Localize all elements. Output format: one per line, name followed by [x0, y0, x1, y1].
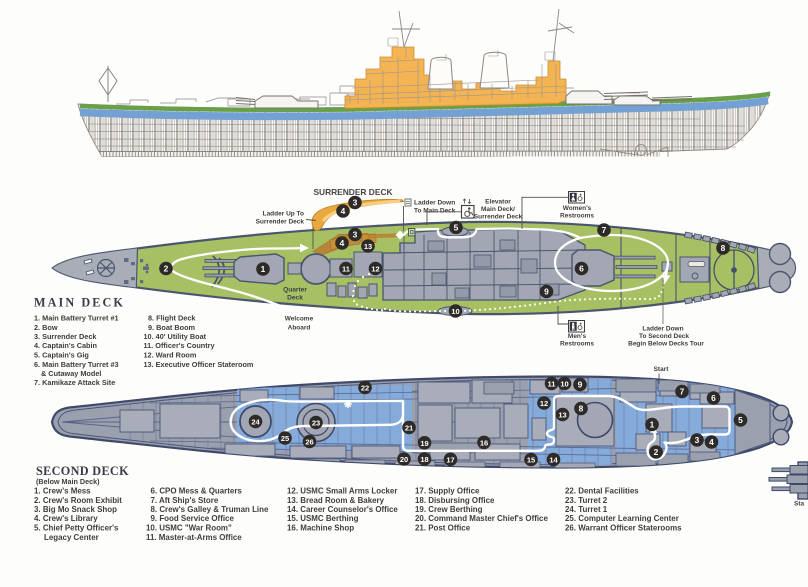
svg-text:6: 6: [579, 264, 584, 274]
svg-text:5: 5: [738, 415, 743, 425]
svg-text:17: 17: [446, 455, 454, 464]
svg-text:Ladder Down: Ladder Down: [642, 326, 683, 333]
svg-text:8: 8: [721, 243, 726, 253]
svg-text:7: 7: [602, 225, 607, 235]
svg-text:11: 11: [548, 380, 556, 389]
svg-text:8. Crew's Galley & Truman Line: 8. Crew's Galley & Truman Line: [151, 505, 269, 514]
svg-text:24. Turret 1: 24. Turret 1: [565, 505, 608, 514]
svg-text:22: 22: [361, 384, 369, 393]
svg-text:(Below Main Deck): (Below Main Deck): [36, 477, 100, 486]
svg-text:10: 10: [451, 307, 459, 316]
svg-text:Ladder Down: Ladder Down: [414, 200, 455, 207]
svg-text:Begin Below Decks Tour: Begin Below Decks Tour: [628, 341, 704, 348]
svg-text:11: 11: [342, 265, 350, 274]
svg-text:3: 3: [353, 198, 358, 208]
svg-text:13: 13: [364, 242, 372, 251]
svg-text:13: 13: [558, 411, 566, 420]
svg-text:9: 9: [578, 380, 583, 390]
svg-text:MAIN DECK: MAIN DECK: [34, 296, 125, 310]
svg-text:7. Kamikaze Attack Site: 7. Kamikaze Attack Site: [34, 378, 115, 387]
svg-text:7. Aft Ship's Store: 7. Aft Ship's Store: [151, 496, 219, 505]
svg-text:6. CPO Mess & Quarters: 6. CPO Mess & Quarters: [151, 487, 243, 496]
svg-text:4: 4: [709, 437, 714, 447]
svg-text:12. Ward Room: 12. Ward Room: [144, 351, 197, 360]
svg-text:Main Deck/: Main Deck/: [481, 206, 515, 213]
svg-text:To Main Deck: To Main Deck: [414, 208, 456, 215]
svg-text:9. Food Service Office: 9. Food Service Office: [151, 514, 235, 523]
svg-text:Men's: Men's: [568, 333, 587, 340]
svg-text:19: 19: [420, 439, 428, 448]
svg-text:26: 26: [305, 438, 313, 447]
svg-text:3. Big Mo Snack Shop: 3. Big Mo Snack Shop: [34, 505, 117, 514]
svg-text:8: 8: [579, 404, 584, 414]
svg-text:11. Master-at-Arms Office: 11. Master-at-Arms Office: [146, 533, 242, 542]
svg-text:3. Surrender Deck: 3. Surrender Deck: [34, 332, 97, 341]
svg-text:22. Dental Facilities: 22. Dental Facilities: [565, 487, 639, 496]
svg-text:20: 20: [400, 455, 408, 464]
svg-text:SURRENDER DECK: SURRENDER DECK: [313, 187, 392, 197]
svg-text:Sta: Sta: [794, 501, 805, 508]
svg-text:12. USMC Small Arms Locker: 12. USMC Small Arms Locker: [287, 487, 397, 496]
svg-text:11. Officer's Country: 11. Officer's Country: [144, 341, 216, 350]
svg-text:Restrooms: Restrooms: [560, 341, 594, 348]
svg-text:21. Post Office: 21. Post Office: [415, 524, 471, 533]
svg-text:5. Chief Petty Officer's: 5. Chief Petty Officer's: [34, 524, 119, 533]
svg-text:Women's: Women's: [563, 205, 592, 212]
svg-text:24: 24: [251, 418, 260, 427]
svg-text:18. Disbursing Office: 18. Disbursing Office: [415, 496, 495, 505]
svg-text:15: 15: [527, 456, 535, 465]
svg-text:To Second Deck: To Second Deck: [639, 333, 689, 340]
svg-text:1: 1: [650, 420, 655, 430]
svg-text:4. Captain's Cabin: 4. Captain's Cabin: [34, 341, 97, 350]
svg-text:17. Supply Office: 17. Supply Office: [415, 487, 480, 496]
svg-text:25. Computer Learning Center: 25. Computer Learning Center: [565, 514, 679, 523]
svg-text:14: 14: [549, 456, 558, 465]
svg-text:Surrender Deck: Surrender Deck: [474, 214, 523, 221]
svg-text:Aboard: Aboard: [288, 325, 311, 332]
svg-text:9: 9: [544, 287, 549, 297]
svg-text:23. Turret 2: 23. Turret 2: [565, 496, 608, 505]
svg-text:16. Machine Shop: 16. Machine Shop: [287, 524, 354, 533]
svg-text:5. Captain's Gig: 5. Captain's Gig: [34, 351, 89, 360]
svg-text:12: 12: [371, 265, 379, 274]
svg-text:21: 21: [405, 424, 413, 433]
svg-text:Start: Start: [654, 366, 670, 373]
svg-text:6. Main Battery Turret #3: 6. Main Battery Turret #3: [34, 360, 119, 369]
svg-text:3: 3: [353, 230, 358, 240]
svg-text:Quarter: Quarter: [283, 287, 307, 294]
svg-text:7: 7: [680, 387, 685, 397]
svg-text:1: 1: [261, 264, 266, 274]
svg-text:Restrooms: Restrooms: [560, 213, 594, 220]
svg-text:SECOND DECK: SECOND DECK: [36, 464, 129, 478]
svg-text:Surrender Deck: Surrender Deck: [256, 219, 305, 226]
svg-text:23: 23: [312, 419, 320, 428]
svg-text:16: 16: [480, 438, 488, 447]
svg-text:& Cutaway Model: & Cutaway Model: [41, 369, 101, 378]
svg-text:2: 2: [164, 264, 169, 274]
svg-text:14. Career Counselor's Office: 14. Career Counselor's Office: [287, 505, 398, 514]
svg-text:Ladder Up To: Ladder Up To: [263, 211, 304, 218]
svg-text:2: 2: [654, 447, 659, 457]
svg-text:4: 4: [340, 238, 345, 248]
svg-text:10. 40' Utility Boat: 10. 40' Utility Boat: [144, 332, 207, 341]
svg-text:25: 25: [281, 434, 289, 443]
svg-text:12: 12: [540, 399, 548, 408]
svg-text:1. Main Battery Turret #1: 1. Main Battery Turret #1: [34, 314, 119, 323]
svg-text:2. Crew's Room Exhibit: 2. Crew's Room Exhibit: [34, 496, 122, 505]
svg-text:20. Command Master Chief's Off: 20. Command Master Chief's Office: [415, 514, 548, 523]
svg-text:2. Bow: 2. Bow: [34, 323, 58, 332]
svg-text:19. Crew Berthing: 19. Crew Berthing: [415, 505, 483, 514]
svg-text:8. Flight Deck: 8. Flight Deck: [148, 314, 196, 323]
svg-text:10: 10: [560, 380, 568, 389]
svg-text:Legacy Center: Legacy Center: [44, 533, 99, 542]
svg-text:Welcome: Welcome: [285, 316, 314, 323]
svg-text:4. Crew's Library: 4. Crew's Library: [34, 514, 98, 523]
svg-text:Deck: Deck: [287, 295, 303, 302]
svg-text:26. Warrant Officer Staterooms: 26. Warrant Officer Staterooms: [565, 524, 682, 533]
svg-text:10. USMC "War Room": 10. USMC "War Room": [146, 524, 232, 533]
svg-text:5: 5: [454, 223, 459, 233]
svg-text:Elevator: Elevator: [485, 199, 511, 206]
svg-text:13. Bread Room & Bakery: 13. Bread Room & Bakery: [287, 496, 385, 505]
svg-text:18: 18: [420, 455, 428, 464]
svg-text:13. Executive Officer Stateroo: 13. Executive Officer Stateroom: [144, 360, 254, 369]
svg-text:15. USMC Berthing: 15. USMC Berthing: [287, 514, 359, 523]
svg-text:6: 6: [711, 393, 716, 403]
svg-text:3: 3: [695, 435, 700, 445]
svg-text:1. Crew's Mess: 1. Crew's Mess: [34, 487, 91, 496]
svg-text:4: 4: [341, 206, 346, 216]
svg-text:9. Boat Boom: 9. Boat Boom: [148, 323, 196, 332]
